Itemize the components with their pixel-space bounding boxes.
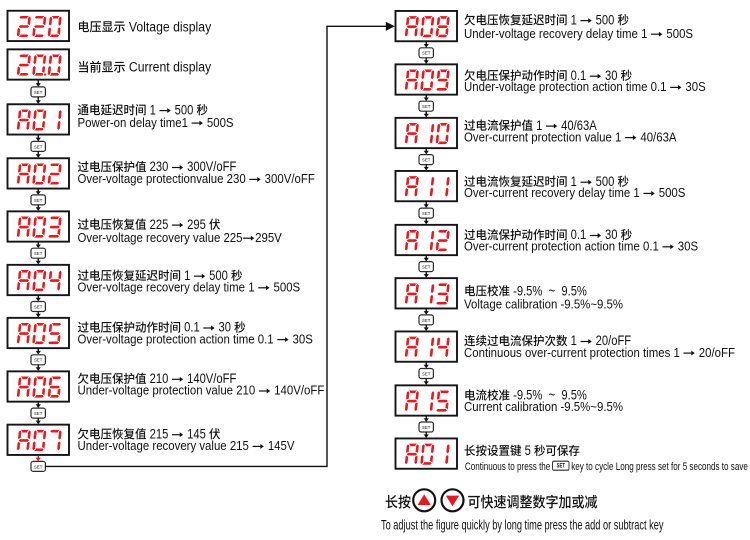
svg-text:500S: 500S: [270, 280, 300, 295]
svg-text:SET: SET: [422, 211, 431, 216]
svg-text:SET: SET: [34, 198, 43, 203]
svg-text:SET: SET: [34, 90, 43, 95]
svg-text:SET: SET: [422, 371, 431, 376]
svg-text:295V: 295V: [255, 230, 282, 245]
svg-text:Power-on delay time1: Power-on delay time1: [78, 115, 192, 130]
svg-text:500S: 500S: [663, 26, 693, 41]
svg-text:40/63A: 40/63A: [637, 130, 677, 145]
svg-text:30S: 30S: [289, 332, 312, 347]
svg-text:SET: SET: [34, 358, 43, 363]
svg-text:Continuous to press the: Continuous to press the: [465, 461, 553, 473]
svg-text:1: 1: [568, 12, 580, 27]
svg-text:SET: SET: [422, 425, 431, 430]
svg-text:SET: SET: [422, 265, 431, 270]
svg-text:SET: SET: [34, 411, 43, 416]
svg-text:Current calibration -9.5%~9.5%: Current calibration -9.5%~9.5%: [464, 400, 623, 415]
svg-text:Voltage display: Voltage display: [126, 19, 212, 35]
svg-text:Continuous over-current protec: Continuous over-current protection times…: [464, 345, 683, 360]
svg-text:Over-current protection value: Over-current protection value 1: [464, 130, 625, 145]
svg-text:300V/oFF: 300V/oFF: [261, 172, 314, 187]
svg-text:Over-voltage recovery delay ti: Over-voltage recovery delay time 1: [78, 280, 258, 295]
svg-text:SET: SET: [34, 251, 43, 256]
svg-text:Over-voltage protection action: Over-voltage protection action time 0.1: [78, 332, 277, 347]
svg-text:SET: SET: [422, 104, 431, 109]
svg-text:140V/oFF: 140V/oFF: [271, 383, 324, 398]
svg-text:Voltage calibration -9.5%~9.5%: Voltage calibration -9.5%~9.5%: [464, 297, 623, 312]
svg-text:SET: SET: [422, 318, 431, 323]
svg-text:500: 500: [593, 12, 618, 27]
svg-text:SET: SET: [557, 463, 566, 470]
svg-text:145V: 145V: [265, 439, 295, 454]
svg-text:SET: SET: [422, 158, 431, 163]
svg-text:Current display: Current display: [126, 59, 212, 75]
svg-text:Under-voltage protection value: Under-voltage protection value 210: [78, 383, 259, 398]
svg-text:To adjust the figure quickly b: To adjust the figure quickly by long tim…: [381, 517, 664, 534]
svg-text:SET: SET: [34, 144, 43, 149]
svg-text:30S: 30S: [682, 80, 705, 95]
svg-text:SET: SET: [34, 464, 43, 469]
svg-text:500S: 500S: [204, 115, 234, 130]
svg-text:Under-voltage recovery value 2: Under-voltage recovery value 215: [78, 439, 253, 454]
svg-text:30S: 30S: [675, 239, 698, 254]
svg-text:Over-voltage recovery value 22: Over-voltage recovery value 225: [78, 230, 243, 245]
svg-text:key to cycle Long press set fo: key to cycle Long press set for 5 second…: [569, 461, 748, 473]
svg-text:Over-current recovery delay ti: Over-current recovery delay time 1: [464, 186, 643, 201]
svg-text:Over-current protection action: Over-current protection action time 0.1: [464, 239, 662, 254]
svg-text:SET: SET: [422, 51, 431, 56]
svg-text:500S: 500S: [656, 186, 686, 201]
svg-text:Over-voltage protectionvalue 2: Over-voltage protectionvalue 230: [78, 172, 249, 187]
svg-text:Under-voltage recovery delay t: Under-voltage recovery delay time 1: [464, 26, 651, 41]
svg-text:SET: SET: [34, 304, 43, 309]
svg-text:5: 5: [522, 443, 534, 458]
svg-text:Under-voltage protection actio: Under-voltage protection action time 0.1: [464, 80, 670, 95]
svg-text:20/oFF: 20/oFF: [696, 345, 735, 360]
